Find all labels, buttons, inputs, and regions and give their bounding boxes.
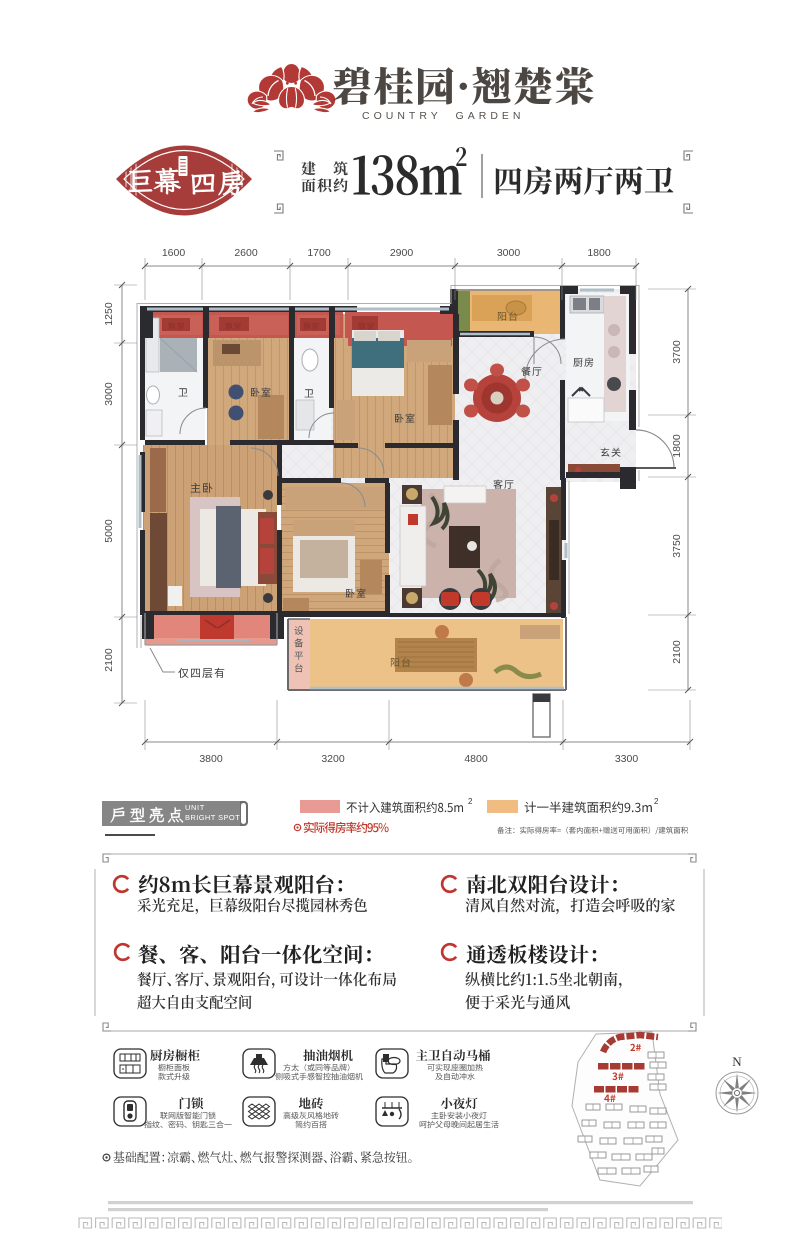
svg-text:N: N [732, 1054, 742, 1069]
svg-text:3300: 3300 [615, 753, 639, 765]
svg-text:3000: 3000 [103, 382, 115, 406]
svg-text:3000: 3000 [497, 247, 521, 259]
svg-text:4800: 4800 [464, 753, 488, 765]
svg-text:2600: 2600 [234, 247, 258, 259]
svg-text:5000: 5000 [103, 519, 115, 543]
svg-text:3700: 3700 [671, 340, 683, 364]
svg-text:3800: 3800 [199, 753, 223, 765]
svg-text:COUNTRY GARDEN: COUNTRY GARDEN [362, 110, 524, 122]
svg-text:1250: 1250 [103, 302, 115, 326]
svg-text:2100: 2100 [103, 648, 115, 672]
svg-text:2100: 2100 [671, 640, 683, 664]
svg-text:3750: 3750 [671, 534, 683, 558]
svg-text:3200: 3200 [321, 753, 345, 765]
svg-text:1800: 1800 [671, 434, 683, 458]
svg-text:1700: 1700 [307, 247, 331, 259]
svg-text:1800: 1800 [587, 247, 611, 259]
svg-text:BRIGHT SPOT: BRIGHT SPOT [185, 813, 240, 822]
svg-text:2900: 2900 [390, 247, 414, 259]
svg-text:UNIT: UNIT [185, 803, 205, 812]
svg-text:2: 2 [654, 797, 659, 806]
svg-text:2: 2 [468, 797, 473, 806]
svg-text:1600: 1600 [162, 247, 186, 259]
